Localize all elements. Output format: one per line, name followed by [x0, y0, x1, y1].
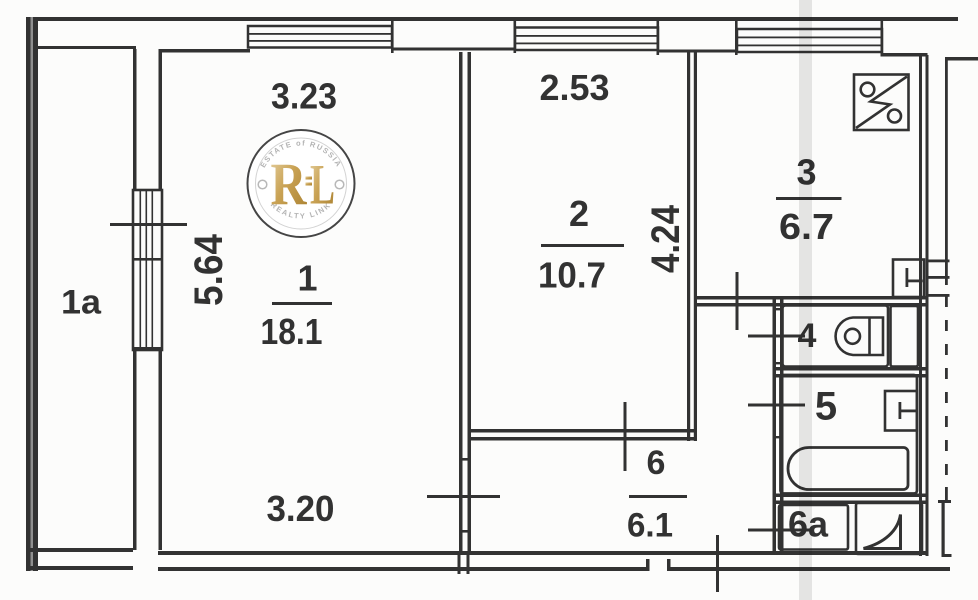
svg-text:2.53: 2.53	[540, 67, 610, 108]
svg-text:1: 1	[297, 258, 317, 299]
svg-text:5.64: 5.64	[187, 233, 231, 306]
svg-text:R: R	[271, 152, 308, 218]
svg-text:L: L	[310, 154, 335, 217]
svg-text:18.1: 18.1	[261, 311, 323, 352]
svg-text:5: 5	[815, 385, 837, 429]
svg-text:6.1: 6.1	[627, 507, 673, 545]
svg-text:6: 6	[647, 444, 666, 482]
svg-text:2: 2	[569, 193, 589, 234]
svg-text:1a: 1a	[61, 284, 102, 322]
svg-text:10.7: 10.7	[538, 255, 606, 296]
svg-text:4.24: 4.24	[644, 204, 688, 273]
svg-text:3.20: 3.20	[267, 488, 335, 529]
svg-text:3.23: 3.23	[271, 76, 337, 117]
